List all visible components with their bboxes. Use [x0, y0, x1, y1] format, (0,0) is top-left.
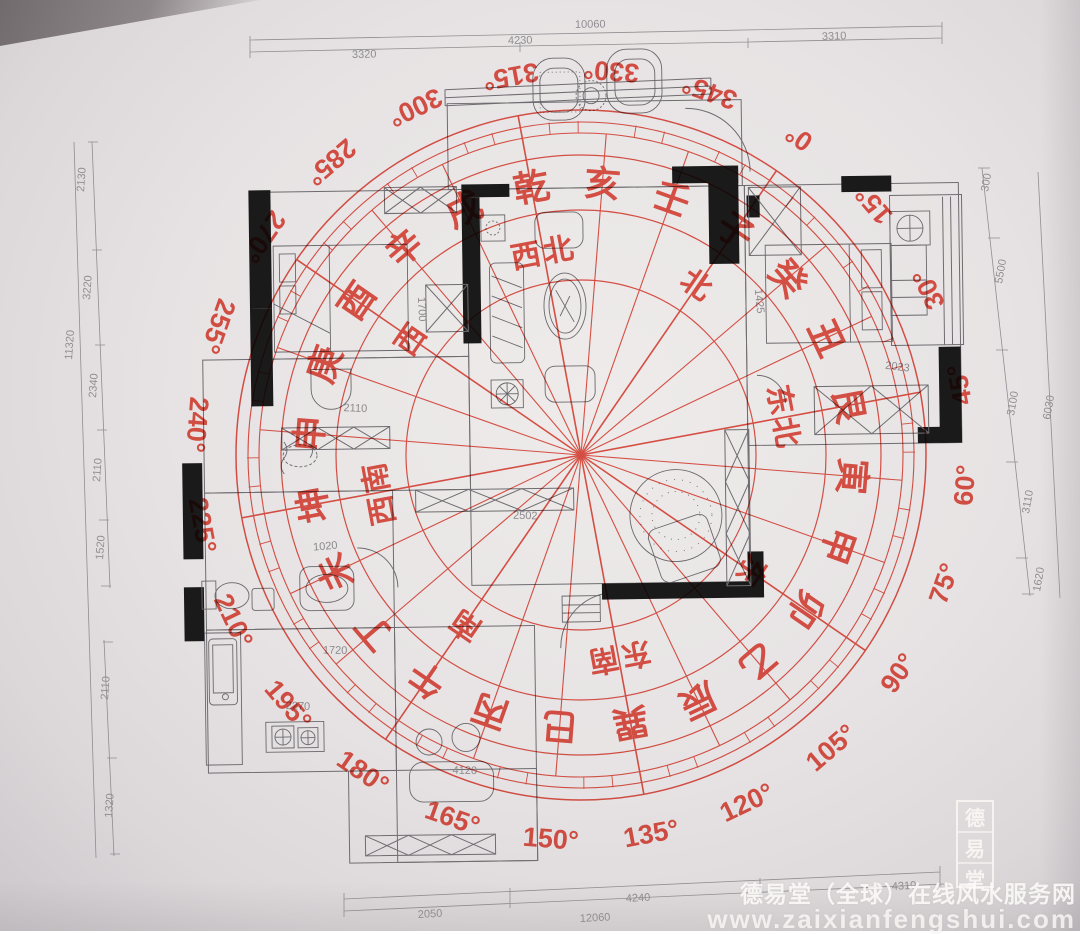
compass-tick	[744, 732, 750, 742]
dim-left-s5: 1520	[94, 535, 108, 560]
compass-mountain-label: 亥	[583, 162, 622, 206]
dim-top-overall: 10060	[575, 18, 606, 31]
dim-hall: 2110	[343, 402, 367, 415]
compass-tick	[829, 660, 838, 668]
compass-tick	[634, 126, 636, 138]
compass-tick	[874, 589, 885, 594]
compass-degree-label: 135°	[621, 814, 681, 854]
watermark-url: www.zaixianfengshui.com	[707, 906, 1076, 933]
dim-left-s4: 2110	[91, 458, 105, 482]
compass-tick	[612, 776, 613, 788]
compass-degree-label: 90°	[874, 648, 922, 699]
compass-degree-label: 330°	[582, 54, 640, 88]
dim-left-s7: 1320	[103, 793, 117, 818]
compass-mountain-label: 乾	[510, 164, 553, 211]
dimension-labels: 10060 3320 4230 3310 2130 3220 11320 234…	[63, 18, 1057, 925]
compass-mountain-label: 巽	[609, 699, 652, 746]
compass-tick	[411, 167, 417, 177]
compass-mountain-label: 甲	[812, 522, 863, 570]
dim-left-s2: 3220	[81, 275, 95, 300]
dim-bottom-s2: 4240	[626, 892, 651, 905]
compass-degree-label: 120°	[715, 777, 778, 828]
compass-mountain-label: 酉	[330, 274, 384, 327]
compass-mountain-label: 坤	[290, 483, 337, 526]
compass-direction-label: 西	[389, 316, 435, 362]
compass-tick	[369, 703, 377, 712]
dim-top-s3: 3310	[822, 30, 847, 43]
dim-top-s2: 4230	[508, 35, 533, 47]
dim-top-s1: 3320	[352, 49, 377, 61]
dim-bed1: 1700	[415, 297, 428, 322]
compass-degree-label: 285°	[300, 133, 362, 192]
dim-bath: 1020	[313, 540, 338, 554]
compass-degree-label: 105°	[800, 718, 862, 777]
compass-tick	[694, 757, 698, 768]
compass-tick	[249, 486, 261, 487]
compass-degree-label: 180°	[331, 744, 394, 800]
compass-direction-label: 西南	[357, 457, 401, 528]
compass-tick	[347, 685, 355, 694]
compass-mountain-label: 寅	[830, 457, 874, 496]
compass-direction-label: 南	[442, 601, 488, 647]
compass-tick	[259, 541, 271, 544]
compass-tick	[858, 285, 868, 291]
compass-tick	[768, 717, 775, 727]
watermark-site-name: 德易堂（全球）在线风水服务网	[707, 882, 1076, 906]
dim-left-overall: 11320	[63, 330, 77, 361]
compass-tick	[843, 261, 853, 268]
seal-char-2: 易	[958, 833, 992, 864]
compass-degree-label: 75°	[923, 559, 965, 608]
round-chair	[629, 469, 723, 585]
compass-degree-label: 150°	[522, 822, 580, 856]
dim-right-s1: 300	[979, 172, 994, 192]
compass-tick	[464, 142, 468, 153]
compass-mountain-label: 丑	[800, 313, 853, 363]
compass-tick	[893, 536, 905, 539]
compass-tick	[442, 748, 447, 759]
dim-left-s6: 2110	[99, 676, 113, 700]
dim-right-s5: 1620	[1031, 566, 1047, 592]
dimension-chains	[74, 22, 1060, 917]
dim-right-s2: 5500	[993, 258, 1009, 284]
compass-tick	[861, 614, 871, 620]
dim-right-overall: 6030	[1041, 394, 1057, 420]
dim-bottom-overall: 12060	[580, 911, 611, 925]
compass-tick	[715, 151, 720, 162]
seal-char-3: 堂	[958, 864, 992, 893]
compass-mountain-label: 申	[288, 414, 332, 453]
compass-degree-label: 255°	[195, 295, 242, 358]
compass-mountain-label: 丙	[466, 686, 514, 737]
compass-tick	[811, 681, 820, 689]
compass-tick	[309, 642, 319, 649]
compass-degree-label: 45°	[941, 362, 978, 408]
floorplan-compass-drawing: 1700 2110 2502 1020 1720 2270 4120 1425 …	[0, 0, 1080, 931]
compass-direction-label: 东北	[760, 382, 805, 453]
seal-char-1: 德	[958, 802, 992, 833]
compass-direction-label: 北	[674, 263, 720, 309]
dim-right-s4: 3110	[1020, 489, 1036, 514]
dim-left-s1: 2130	[75, 167, 89, 192]
compass-mountain-label: 辰	[673, 674, 723, 727]
compass-degree-label: 270°	[236, 205, 292, 268]
compass-mountain-label: 庚	[299, 340, 350, 388]
compass-tick	[497, 767, 500, 779]
compass-mountain-label: 卯	[778, 583, 832, 636]
dim-living: 2502	[513, 510, 538, 523]
compass-tick	[902, 423, 914, 424]
compass-direction-label: 西北	[508, 231, 579, 275]
compass-tick	[786, 197, 794, 206]
compass-tick	[277, 316, 288, 321]
compass-tick	[492, 133, 495, 145]
compass-tick	[343, 221, 352, 229]
compass-mountain-label: 巳	[540, 704, 579, 748]
luopan-compass-overlay: 0°15°30°45°60°75°90°105°120°135°150°165°…	[180, 54, 981, 856]
compass-tick	[662, 132, 665, 144]
photo-background: 1700 2110 2502 1020 1720 2270 4120 1425 …	[0, 0, 1080, 931]
dim-bottom-s1: 2050	[418, 908, 443, 921]
compass-tick	[807, 217, 815, 226]
compass-tick	[293, 618, 303, 624]
watermark-seal: 德 易 堂	[956, 800, 994, 888]
compass-degree-label: 210°	[208, 589, 259, 652]
compass-tick	[323, 243, 332, 251]
compass-tick	[268, 568, 279, 572]
compass-degree-label: 60°	[948, 464, 981, 507]
compass-tick	[526, 773, 528, 785]
compass-degree-label: 300°	[384, 82, 447, 133]
compass-degree-label: 315°	[481, 57, 541, 97]
compass-degree-label: 0°	[780, 118, 818, 157]
compass-degree-label: 195°	[259, 674, 318, 736]
compass-tick	[899, 508, 911, 510]
compass-tick	[667, 765, 670, 777]
compass-tick	[549, 123, 550, 135]
dim-kitchen1: 1720	[323, 644, 348, 657]
compass-degree-label: 240°	[180, 396, 214, 454]
compass-mountain-label: 午	[400, 652, 453, 706]
compass-direction-label: 东南	[583, 634, 654, 679]
compass-mountain-label: 艮	[825, 384, 872, 428]
watermark: 德易堂（全球）在线风水服务网 www.zaixianfengshui.com	[707, 882, 1076, 933]
dim-left-s3: 2340	[87, 373, 101, 398]
